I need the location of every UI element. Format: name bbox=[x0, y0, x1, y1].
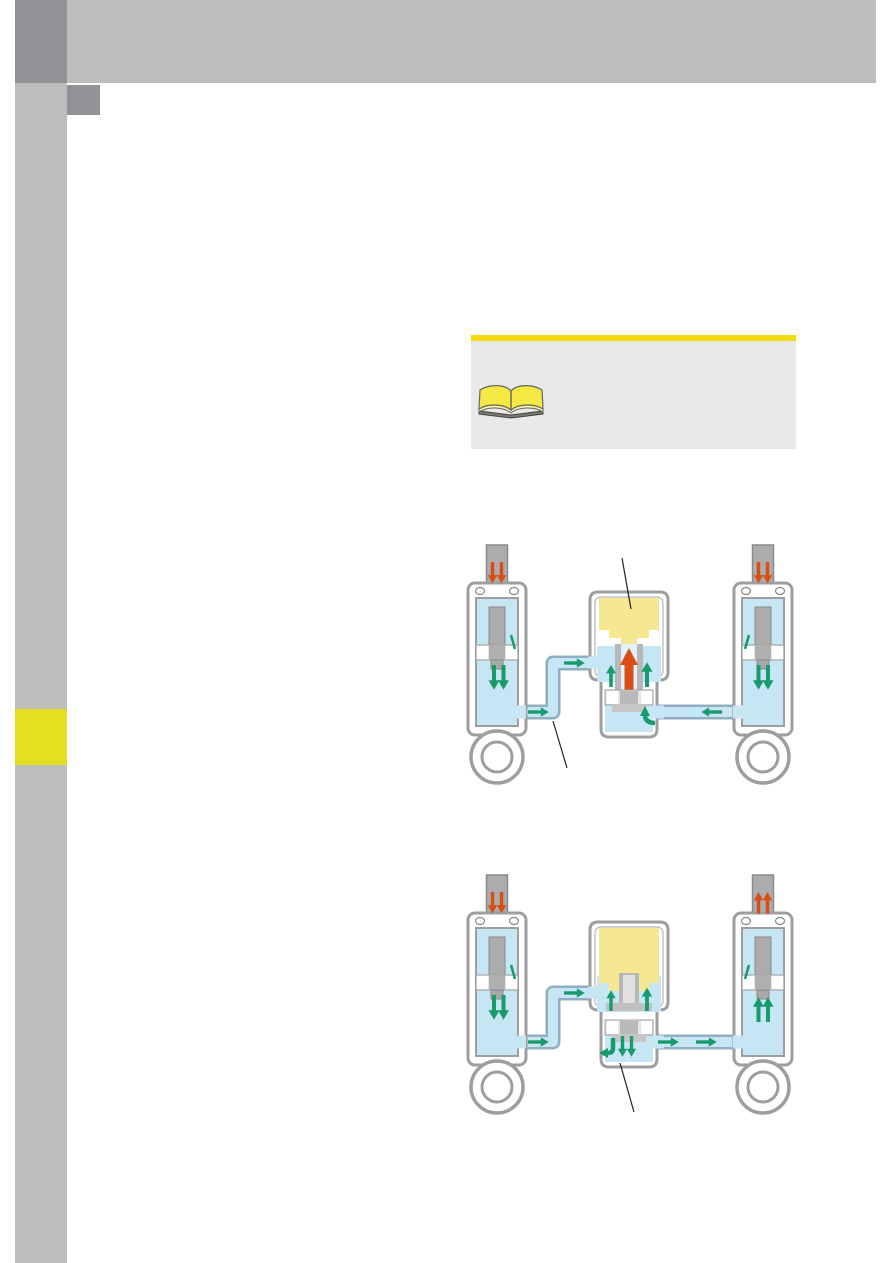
figure-2-callout-valve bbox=[620, 1063, 634, 1112]
figure-1-same-phase bbox=[468, 545, 792, 783]
sidebar-column bbox=[15, 83, 67, 1263]
document-page bbox=[0, 0, 893, 1263]
reference-info-box bbox=[471, 335, 796, 449]
info-box-accent-bar bbox=[471, 335, 796, 341]
hydraulic-diagrams bbox=[455, 540, 805, 1125]
figure-2-left-pipe bbox=[516, 993, 598, 1042]
figure-1-left-pipe bbox=[516, 663, 598, 712]
damper-system-figures bbox=[455, 540, 805, 1125]
header-bar bbox=[15, 0, 876, 83]
open-book-icon bbox=[475, 381, 547, 424]
figure-1-callout-pipe bbox=[553, 721, 567, 768]
figure-2-opposite-phase bbox=[468, 875, 792, 1113]
section-marker-square bbox=[67, 85, 100, 115]
figure-2-right-damper bbox=[734, 875, 792, 1113]
sidebar-top-block bbox=[15, 0, 67, 83]
chapter-marker-yellow bbox=[15, 709, 67, 765]
figure-2-left-damper bbox=[468, 875, 526, 1113]
figure-1-left-damper bbox=[468, 545, 526, 783]
figure-1-right-damper bbox=[734, 545, 792, 783]
